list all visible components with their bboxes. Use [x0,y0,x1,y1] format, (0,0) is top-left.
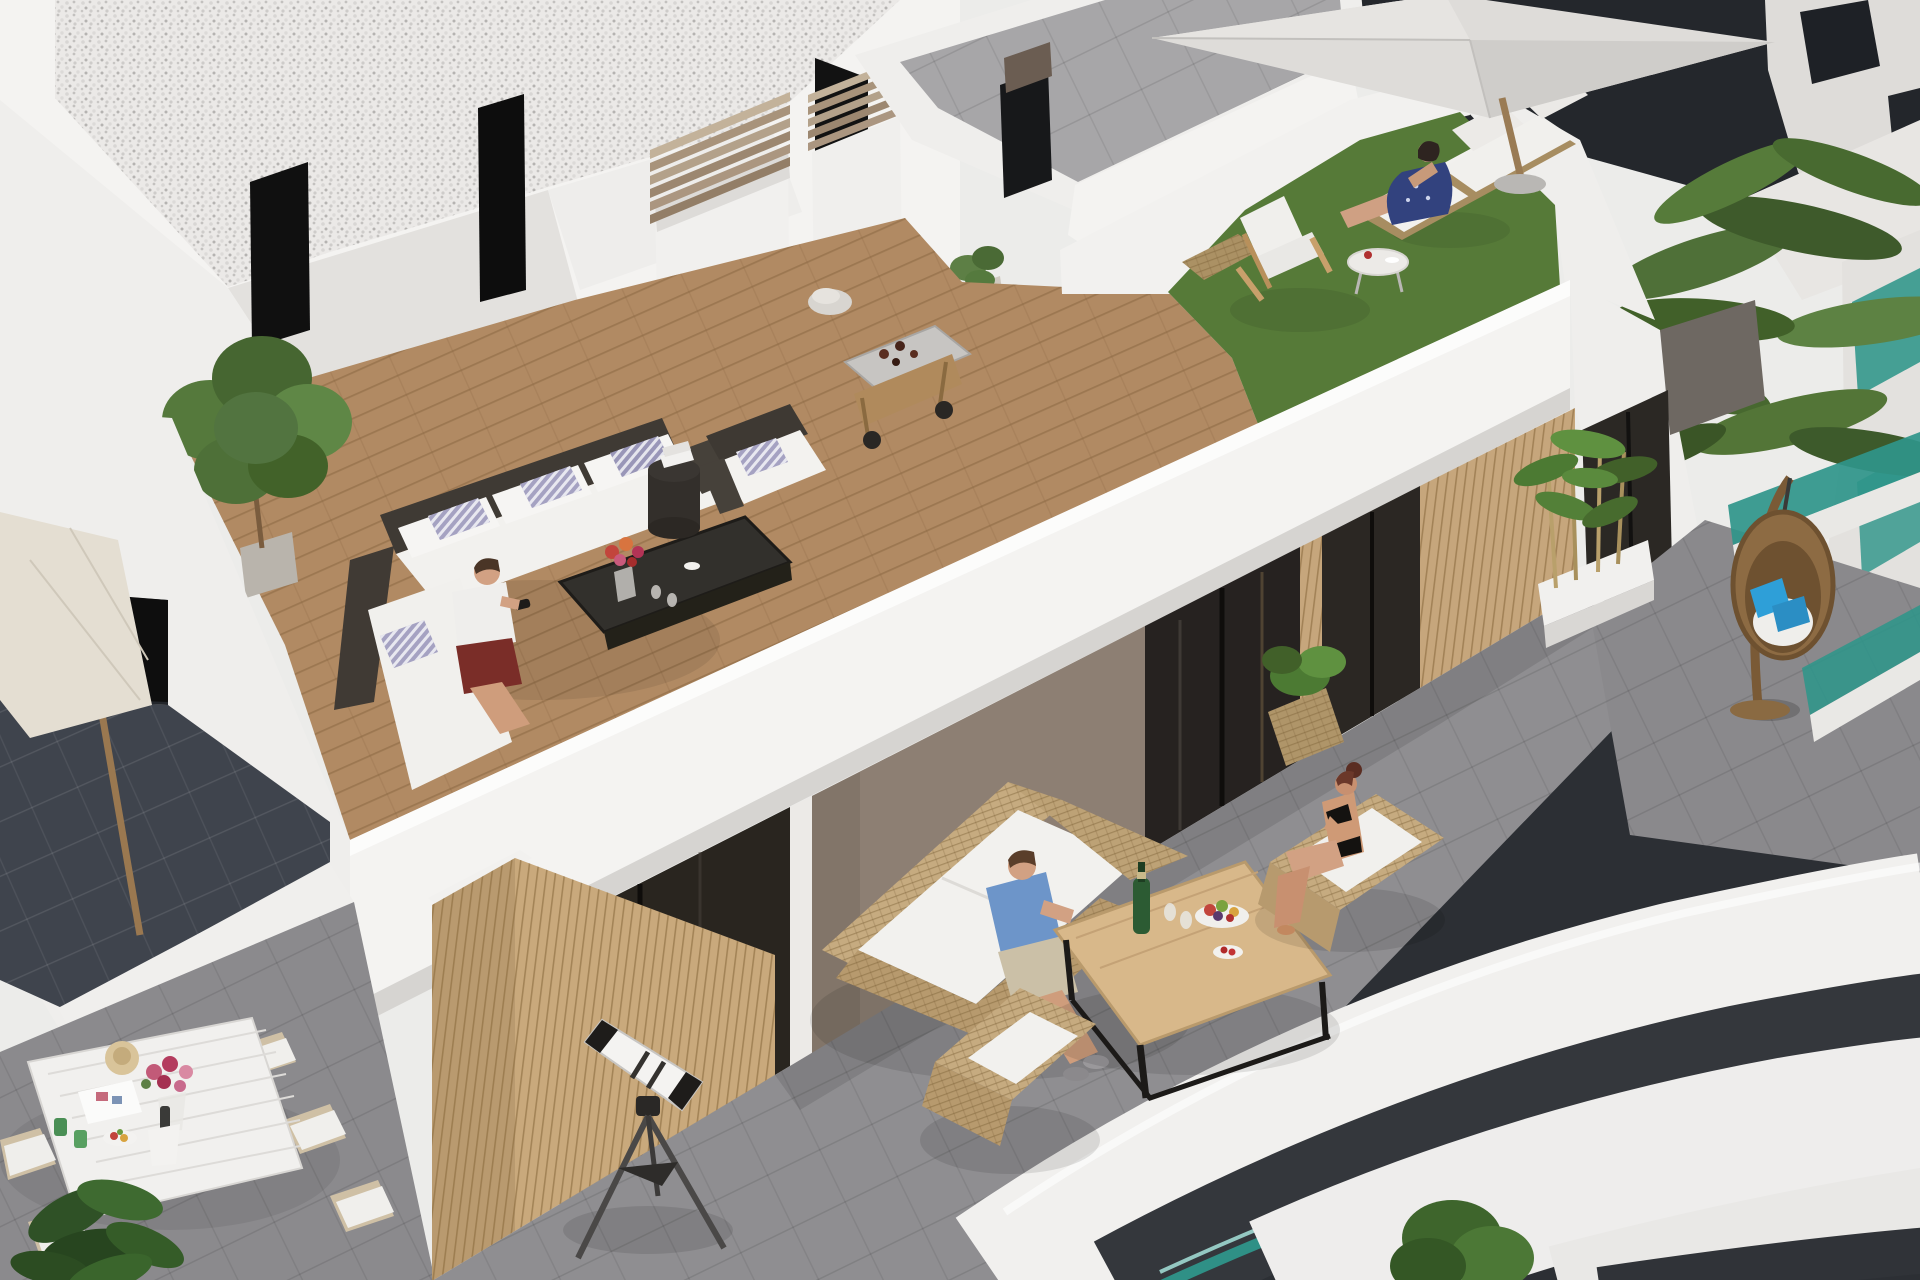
white-pilaster [790,796,812,1066]
drink-can [74,1130,87,1148]
drink-can [54,1118,67,1136]
render-stage [0,0,1920,1280]
champagne-glass [1164,903,1176,921]
telescope-mount [636,1096,660,1116]
coffee-cup [684,562,700,570]
red-drink [1364,251,1372,259]
strawberry-plate [1213,945,1243,959]
glass [651,585,661,599]
wheel [935,401,953,419]
roof-doorway-1 [250,162,310,348]
parasol-base [1494,174,1546,194]
egg-base [1730,700,1790,720]
wheel [863,431,881,449]
roof-doorway-2 [478,94,526,302]
penthouse-render [0,0,1920,1280]
